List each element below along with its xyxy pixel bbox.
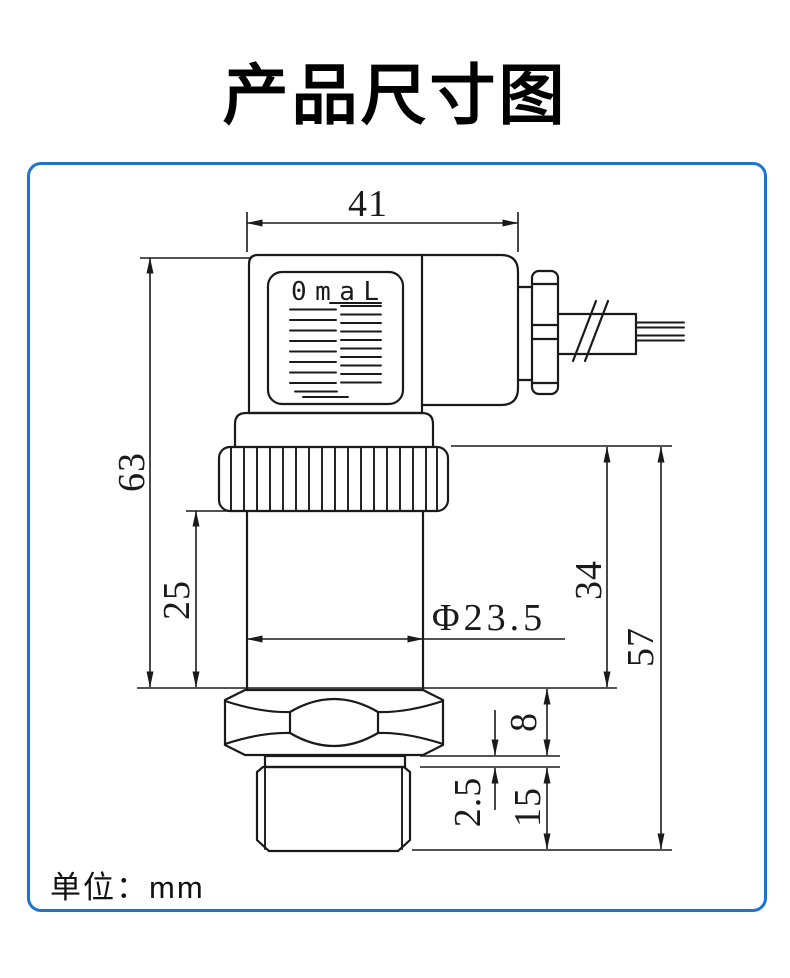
dim-body-diameter: Φ23.5 [432,597,546,639]
dim-housing-total-height: 57 [620,627,662,667]
cable-gland-lines [532,284,558,383]
dim-thread-length: 15 [507,787,549,827]
dim-connector-width: 41 [348,183,388,225]
cable-gland [532,271,558,394]
washer [265,756,405,767]
hex-nut-facets [225,699,443,746]
mounting-flange [235,413,433,447]
page: 产品尺寸图 [0,0,790,978]
wires [636,323,684,341]
unit-label: 单位：mm [50,862,205,907]
label-text-lines [290,303,381,397]
thread-relief-lines [265,768,402,849]
connector-side-section [422,255,518,405]
dim-overall-height: 63 [111,452,153,492]
cable-break-symbol [573,301,608,361]
dim-hex-height: 8 [503,712,545,732]
dim-housing-height: 34 [568,560,610,600]
cylinder-body [247,511,423,689]
cable-tube [558,314,636,354]
label-plate [268,272,403,404]
sensor-outline [219,255,684,851]
connector-body [249,255,422,413]
gland-neck [518,287,532,380]
product-dimension-drawing: 41 63 25 Φ23.5 34 57 8 2.5 15 0maL [0,0,790,978]
dim-washer-thickness: 2.5 [447,777,489,828]
thread-body [257,767,410,851]
dim-body-height: 25 [156,580,198,620]
knurl-ribs [231,448,437,510]
